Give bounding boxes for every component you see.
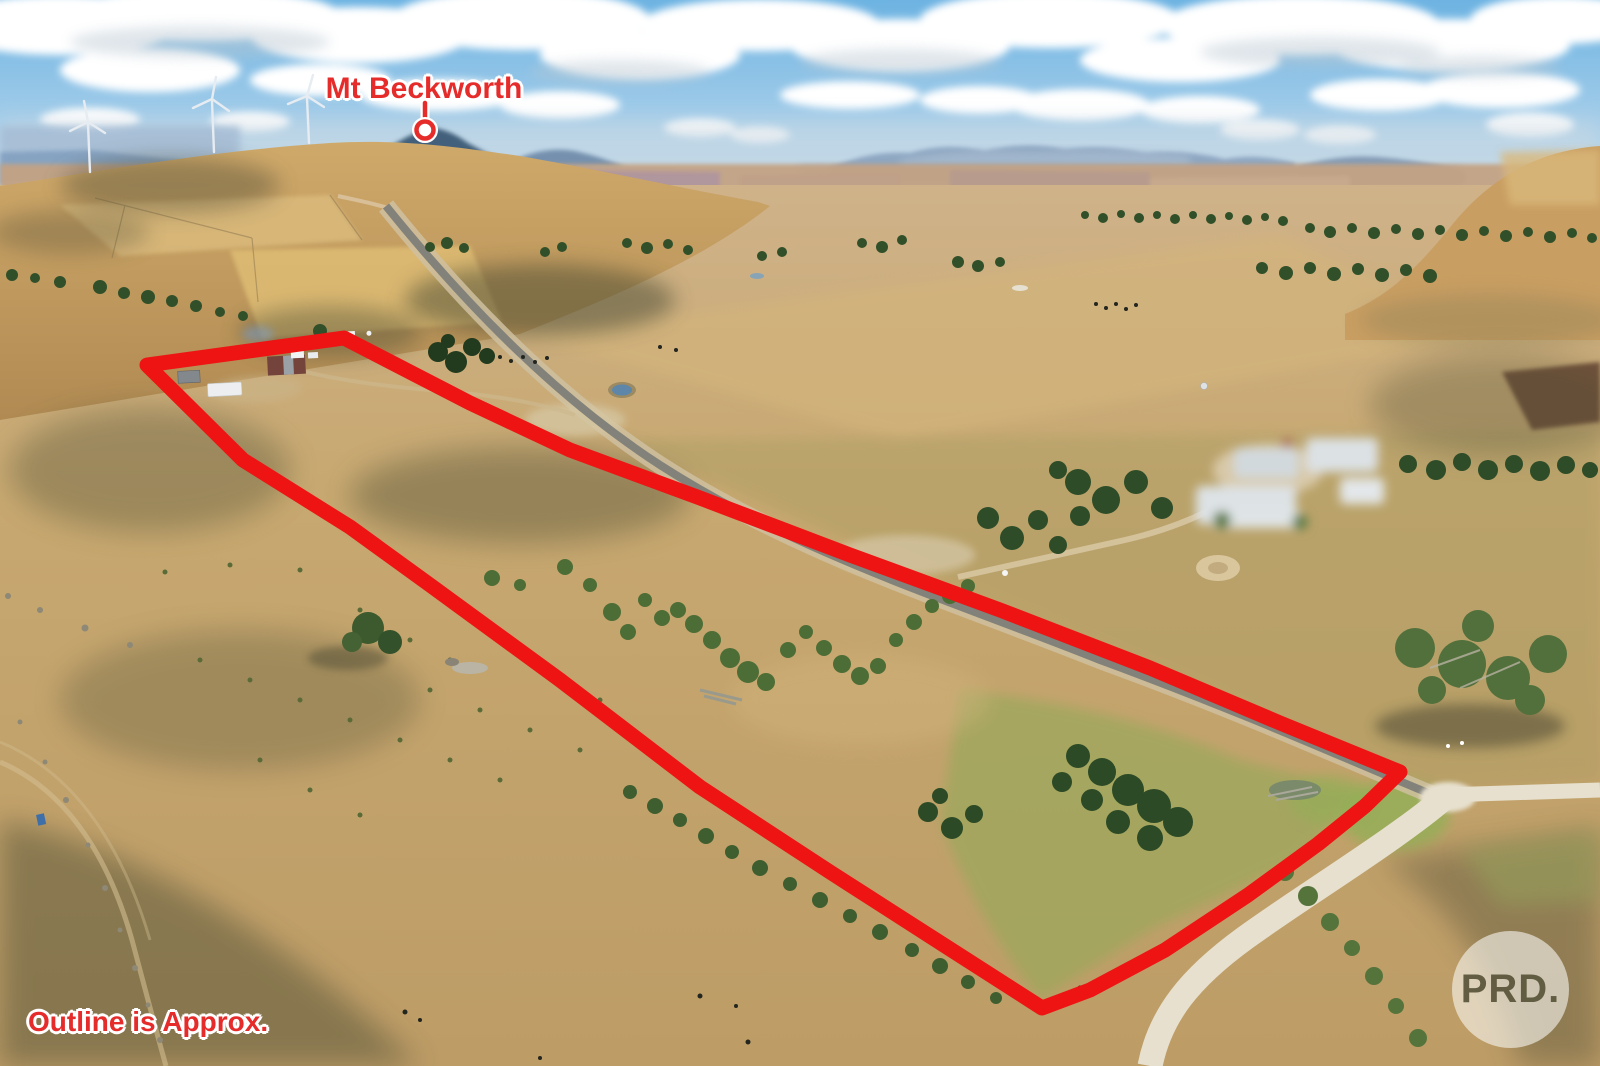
location-pin-icon	[411, 99, 439, 147]
aerial-property-photo: Mt Beckworth Outline is Approx. PRD.	[0, 0, 1600, 1066]
water-tank	[1201, 383, 1208, 390]
white-car	[1002, 570, 1008, 576]
prd-logo-text: PRD.	[1461, 967, 1561, 1012]
outline-disclaimer-label: Outline is Approx.	[28, 1006, 268, 1038]
blurred-sign	[242, 326, 274, 342]
prd-watermark: PRD.	[1452, 931, 1569, 1048]
gravel-road-east	[1444, 790, 1600, 795]
landscape-art	[0, 0, 1600, 1066]
